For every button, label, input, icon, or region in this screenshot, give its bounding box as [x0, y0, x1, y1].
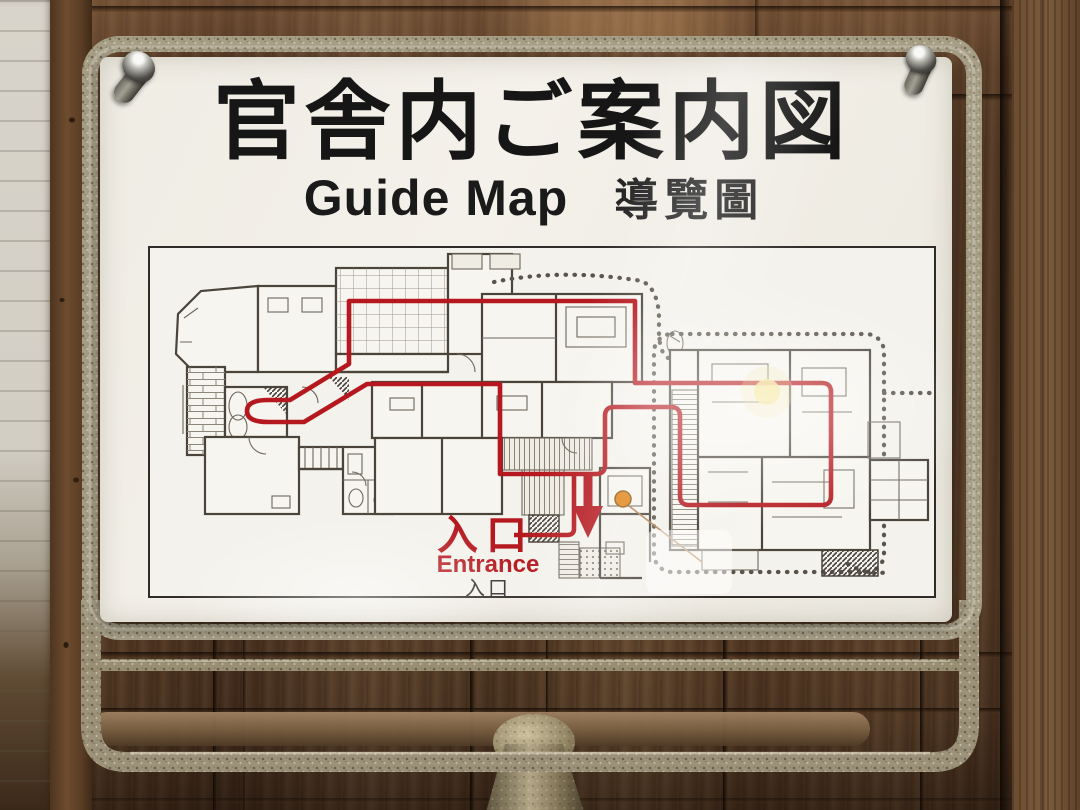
sign-title-english: Guide Map [304, 173, 569, 223]
entrance-label-en: Entrance [437, 551, 540, 578]
sign-board: 官舎内ご案内図 Guide Map 導覽圖 [100, 57, 952, 622]
entrance-arrow-head [573, 506, 603, 538]
photo-scene: 官舎内ご案内図 Guide Map 導覽圖 [0, 0, 1080, 810]
sign-title-chinese: 導覽圖 [614, 179, 764, 223]
floor-plan: 入口 Entrance 入口 [150, 248, 934, 596]
map-panel: 入口 Entrance 入口 [148, 246, 936, 598]
background-wood-rail [90, 712, 870, 746]
sign-title-japanese: 官舎内ご案内図 [100, 79, 952, 165]
entrance-label-jp-small: 入口 [465, 578, 511, 596]
location-marker [615, 491, 631, 507]
sign-subtitle-row: Guide Map 導覽圖 [100, 173, 952, 223]
